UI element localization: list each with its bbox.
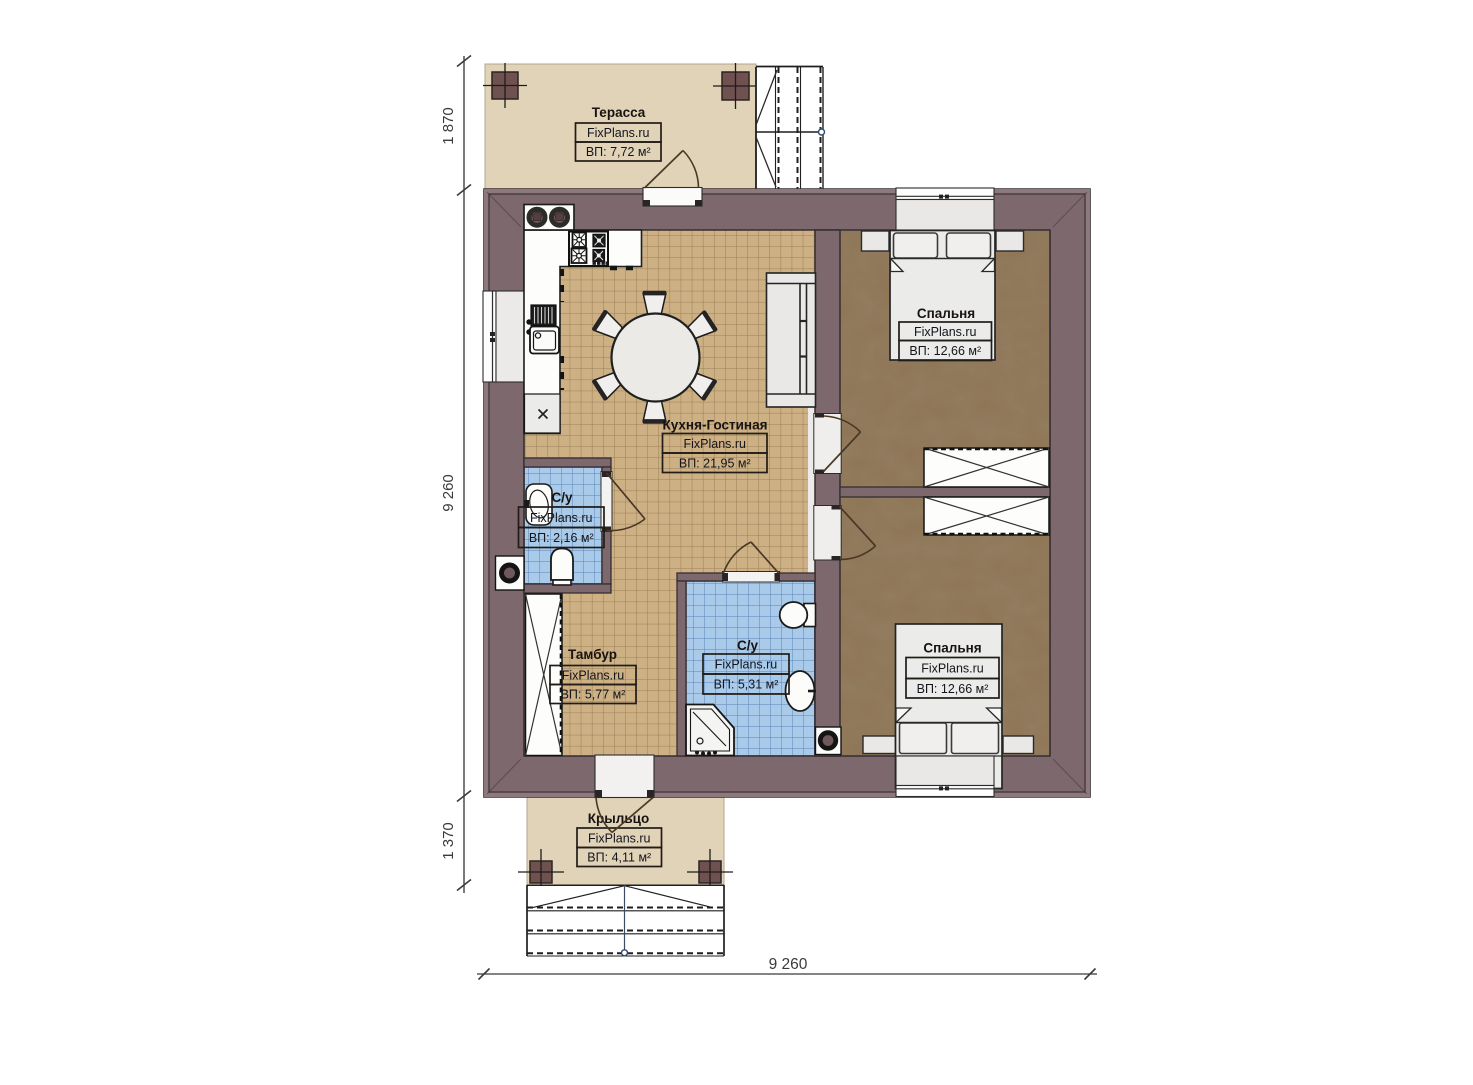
svg-text:С/у: С/у <box>737 638 759 653</box>
svg-text:Спальня: Спальня <box>923 641 981 656</box>
svg-text:FixPlans.ru: FixPlans.ru <box>683 437 746 451</box>
svg-text:FixPlans.ru: FixPlans.ru <box>530 511 593 525</box>
svg-text:9 260: 9 260 <box>440 474 457 512</box>
svg-text:FixPlans.ru: FixPlans.ru <box>588 831 651 845</box>
svg-text:ВП: 2,16 м²: ВП: 2,16 м² <box>529 531 594 545</box>
svg-text:ВП: 4,11 м²: ВП: 4,11 м² <box>587 851 651 865</box>
svg-text:С/у: С/у <box>551 490 573 505</box>
svg-text:ВП: 21,95 м²: ВП: 21,95 м² <box>679 456 751 470</box>
svg-text:ВП: 5,31 м²: ВП: 5,31 м² <box>714 678 779 692</box>
svg-text:Тамбур: Тамбур <box>568 647 617 662</box>
svg-text:ВП: 12,66 м²: ВП: 12,66 м² <box>917 682 989 696</box>
svg-text:FixPlans.ru: FixPlans.ru <box>921 662 984 676</box>
svg-text:FixPlans.ru: FixPlans.ru <box>587 126 650 140</box>
svg-text:Терасса: Терасса <box>592 105 646 120</box>
svg-text:ВП: 12,66 м²: ВП: 12,66 м² <box>909 344 981 358</box>
svg-text:Крыльцо: Крыльцо <box>588 811 649 826</box>
svg-text:ВП: 5,77 м²: ВП: 5,77 м² <box>561 688 626 702</box>
svg-text:Кухня-Гостиная: Кухня-Гостиная <box>663 418 768 433</box>
svg-text:Спальня: Спальня <box>917 306 975 321</box>
svg-text:1 370: 1 370 <box>440 822 457 860</box>
svg-text:ВП: 7,72 м²: ВП: 7,72 м² <box>586 145 651 159</box>
svg-text:FixPlans.ru: FixPlans.ru <box>914 325 977 339</box>
svg-text:FixPlans.ru: FixPlans.ru <box>715 658 778 672</box>
svg-text:9 260: 9 260 <box>769 956 808 973</box>
svg-text:FixPlans.ru: FixPlans.ru <box>562 669 625 683</box>
svg-text:1 870: 1 870 <box>440 107 457 145</box>
